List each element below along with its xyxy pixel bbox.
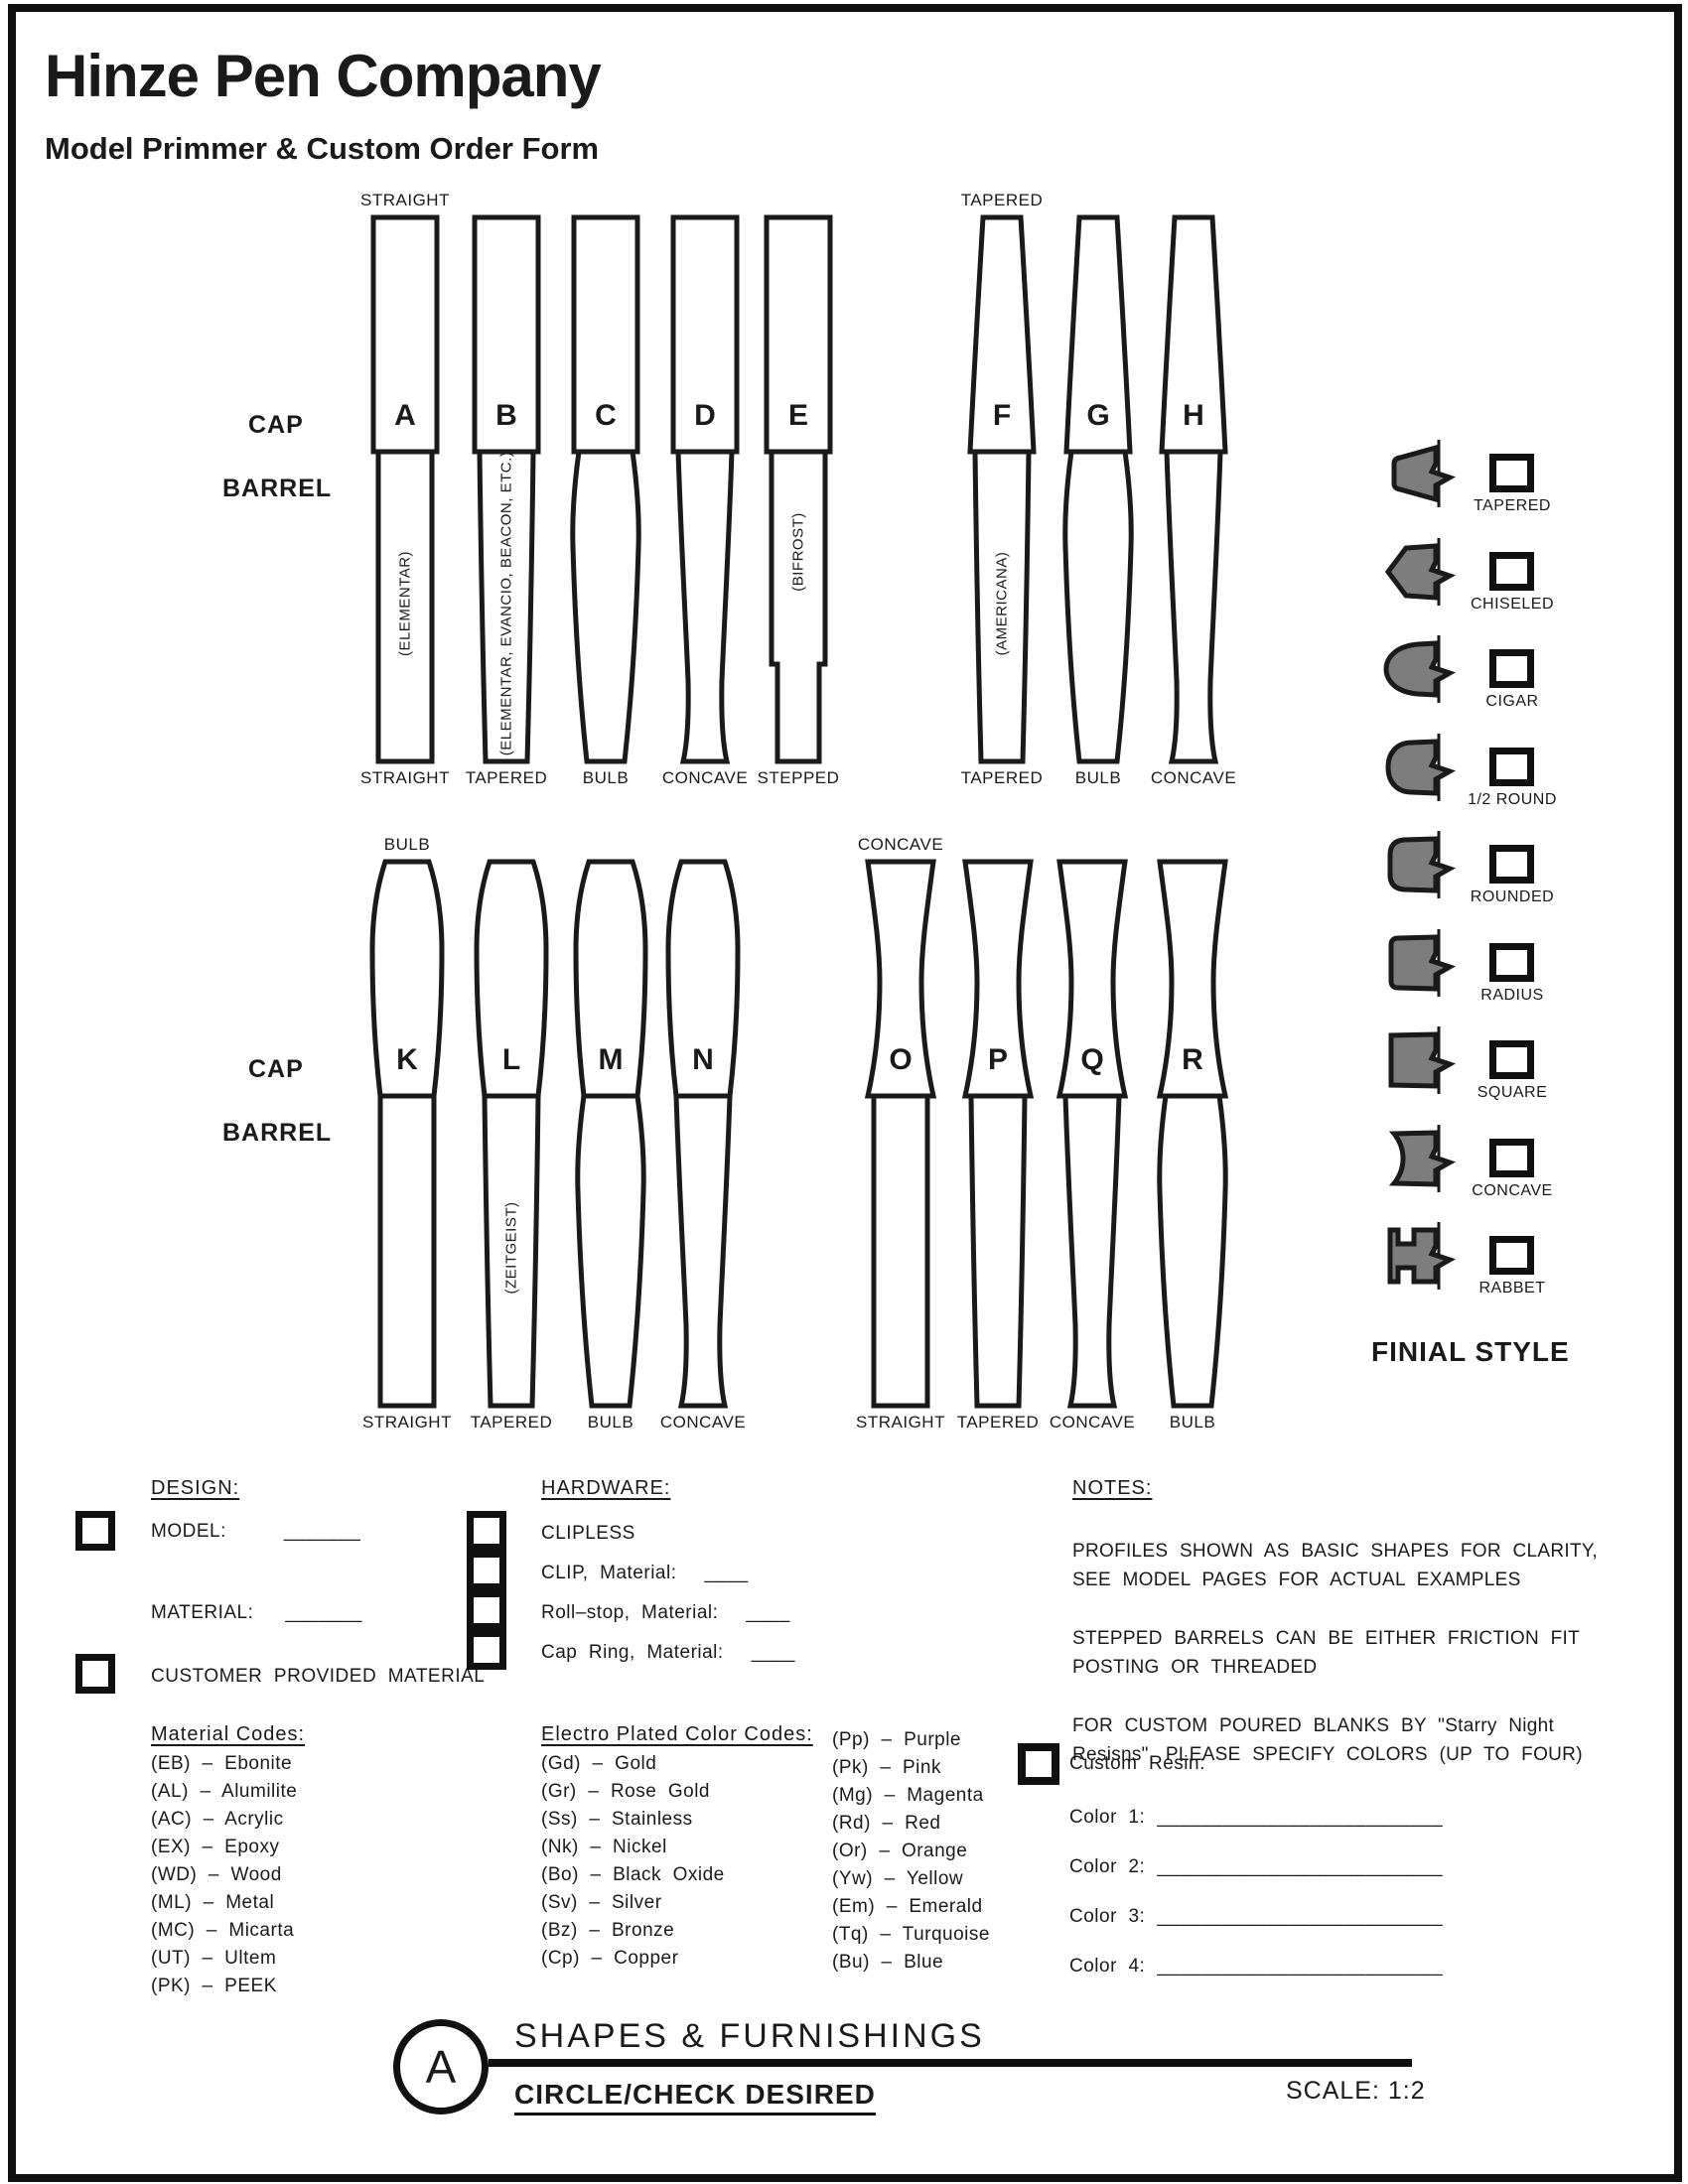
material-code-item: (EB) – Ebonite	[151, 1753, 292, 1775]
finial-shape-radius	[1384, 935, 1464, 991]
finial-label: CONCAVE	[1433, 1182, 1592, 1200]
hardware-label: CLIPLESS	[541, 1523, 635, 1544]
pen-a[interactable]: A(ELEMENTAR)STRAIGHT	[369, 214, 441, 810]
pen-g[interactable]: GBULB	[1062, 214, 1134, 810]
hardware-checkbox[interactable]	[467, 1630, 506, 1670]
finial-shape-concave	[1384, 1131, 1464, 1186]
material-row: MATERIAL:_______	[151, 1602, 362, 1624]
pen-letter: P	[962, 1043, 1034, 1077]
barrel-type-label: CONCAVE	[624, 1413, 782, 1433]
pen-barrel-shape	[971, 1096, 1025, 1406]
hardware-label: Cap Ring, Material:	[541, 1642, 724, 1663]
finial-checkbox-half-round[interactable]	[1489, 748, 1534, 786]
finial-label: RABBET	[1433, 1280, 1592, 1297]
barrel-row-label: BARREL	[222, 1119, 332, 1148]
customer-material-label: CUSTOMER PROVIDED MATERIAL	[151, 1666, 485, 1688]
resin-color-field[interactable]: __________________________	[1157, 1856, 1443, 1877]
finial-checkbox-chiseled[interactable]	[1489, 552, 1534, 591]
barrel-type-label: STEPPED	[719, 768, 878, 788]
finial-label: 1/2 ROUND	[1433, 791, 1592, 809]
barrel-row-label: BARREL	[222, 475, 332, 503]
hardware-label: CLIP, Material:	[541, 1563, 676, 1583]
material-code-item: (ML) – Metal	[151, 1892, 274, 1914]
sheet-title: SHAPES & FURNISHINGS	[514, 2017, 985, 2056]
pen-letter: M	[575, 1043, 646, 1077]
pen-f[interactable]: F(AMERICANA)TAPERED	[966, 214, 1038, 810]
material-codes-heading: Material Codes:	[151, 1723, 305, 1746]
material-code-item: (AL) – Alumilite	[151, 1781, 297, 1803]
cap-type-label: TAPERED	[916, 191, 1087, 210]
company-title: Hinze Pen Company	[45, 42, 601, 110]
plating-code-item: (Cp) – Copper	[541, 1948, 678, 1970]
order-form-page: Hinze Pen Company Model Primmer & Custom…	[0, 0, 1688, 2184]
material-code-item: (MC) – Micarta	[151, 1920, 294, 1942]
finial-label: CHISELED	[1433, 596, 1592, 614]
finial-checkbox-tapered[interactable]	[1489, 454, 1534, 492]
plating-code-item: (Pk) – Pink	[832, 1757, 941, 1779]
resin-color-row: Color 4:__________________________	[1069, 1956, 1443, 1978]
pen-model-note: (AMERICANA)	[994, 552, 1011, 656]
plating-code-item: (Sv) – Silver	[541, 1892, 662, 1914]
finial-checkbox-radius[interactable]	[1489, 943, 1534, 982]
material-field[interactable]: _______	[285, 1602, 361, 1623]
finial-label: RADIUS	[1433, 987, 1592, 1005]
plating-code-item: (Yw) – Yellow	[832, 1868, 963, 1890]
pen-letter: A	[369, 399, 441, 433]
note-stepped: STEPPED BARRELS CAN BE EITHER FRICTION F…	[1072, 1624, 1617, 1682]
pen-model-note: (ELEMENTAR)	[397, 551, 414, 656]
pen-b[interactable]: B(ELEMENTAR, EVANCIO, BEACON, ETC.)TAPER…	[471, 214, 542, 810]
pen-letter: B	[471, 399, 542, 433]
plating-code-item: (Mg) – Magenta	[832, 1785, 984, 1807]
pen-letter: O	[865, 1043, 936, 1077]
hardware-checkbox[interactable]	[467, 1511, 506, 1551]
plating-code-item: (Bz) – Bronze	[541, 1920, 674, 1942]
finial-shape-square	[1384, 1032, 1464, 1088]
sheet-scale: SCALE: 1:2	[1286, 2077, 1426, 2106]
hardware-material-field[interactable]: ____	[746, 1602, 789, 1623]
cap-type-label: STRAIGHT	[320, 191, 491, 210]
finial-shape-rounded	[1384, 837, 1464, 892]
finial-shape-half-round	[1384, 740, 1464, 795]
resin-color-row: Color 2:__________________________	[1069, 1856, 1443, 1878]
material-code-item: (EX) – Epoxy	[151, 1837, 280, 1858]
plating-code-item: (Rd) – Red	[832, 1813, 940, 1835]
material-code-item: (UT) – Ultem	[151, 1948, 276, 1970]
plating-code-item: (Tq) – Turquoise	[832, 1924, 990, 1946]
pen-q[interactable]: QCONCAVE	[1056, 859, 1128, 1454]
pen-r[interactable]: RBULB	[1157, 859, 1228, 1454]
finial-label: ROUNDED	[1433, 888, 1592, 906]
pen-letter: D	[669, 399, 741, 433]
design-heading: DESIGN:	[151, 1477, 239, 1500]
resin-color-label: Color 3:	[1069, 1906, 1145, 1927]
pen-n[interactable]: NCONCAVE	[667, 859, 739, 1454]
pen-barrel-shape	[578, 1096, 644, 1406]
pen-letter: Q	[1056, 1043, 1128, 1077]
sheet-instruction: CIRCLE/CHECK DESIRED	[514, 2079, 876, 2116]
finial-shape-tapered	[1384, 446, 1464, 501]
hardware-row: Roll–stop, Material:____	[541, 1602, 790, 1624]
resin-color-row: Color 1:__________________________	[1069, 1807, 1443, 1829]
pen-barrel-shape	[1065, 1096, 1119, 1406]
pen-letter: L	[476, 1043, 547, 1077]
material-code-item: (WD) – Wood	[151, 1864, 282, 1886]
hardware-checkbox[interactable]	[467, 1590, 506, 1630]
finial-shape-rabbet	[1384, 1228, 1464, 1284]
resin-color-label: Color 1:	[1069, 1807, 1145, 1828]
finial-checkbox-square[interactable]	[1489, 1040, 1534, 1079]
pen-barrel-shape	[772, 452, 825, 761]
plating-code-item: (Bo) – Black Oxide	[541, 1864, 725, 1886]
plating-code-item: (Ss) – Stainless	[541, 1809, 693, 1831]
resin-color-field[interactable]: __________________________	[1157, 1956, 1443, 1977]
resin-color-label: Color 4:	[1069, 1956, 1145, 1977]
custom-resin-label: Custom Resin:	[1069, 1753, 1205, 1775]
finial-checkbox-concave[interactable]	[1489, 1139, 1534, 1177]
barrel-type-label: CONCAVE	[1114, 768, 1273, 788]
material-label: MATERIAL:	[151, 1602, 253, 1623]
pen-letter: R	[1157, 1043, 1228, 1077]
hardware-material-field[interactable]: ____	[752, 1642, 795, 1663]
pen-c[interactable]: CBULB	[570, 214, 641, 810]
finial-label: SQUARE	[1433, 1084, 1592, 1102]
pen-d[interactable]: DCONCAVE	[669, 214, 741, 810]
pen-m[interactable]: MBULB	[575, 859, 646, 1454]
pen-barrel-shape	[1160, 1096, 1226, 1406]
pen-letter: H	[1158, 399, 1229, 433]
pen-p[interactable]: PTAPERED	[962, 859, 1034, 1454]
pen-letter: K	[371, 1043, 443, 1077]
model-row: MODEL:_______	[151, 1521, 360, 1543]
cap-row-label: CAP	[248, 411, 304, 440]
plating-code-item: (Em) – Emerald	[832, 1896, 983, 1918]
cap-row-label: CAP	[248, 1055, 304, 1084]
pen-model-note: (ZEITGEIST)	[503, 1202, 520, 1295]
finial-checkbox-cigar[interactable]	[1489, 649, 1534, 688]
plating-code-item: (Or) – Orange	[832, 1841, 967, 1862]
title-block-divider	[489, 2059, 1412, 2067]
hardware-material-field[interactable]: ____	[704, 1563, 748, 1583]
pen-letter: N	[667, 1043, 739, 1077]
pen-k[interactable]: KSTRAIGHT	[371, 859, 443, 1454]
material-code-item: (PK) – PEEK	[151, 1976, 277, 1997]
resin-color-row: Color 3:__________________________	[1069, 1906, 1443, 1928]
barrel-type-label: BULB	[1113, 1413, 1272, 1433]
finial-shape-cigar	[1384, 641, 1464, 697]
finial-style-heading: FINIAL STYLE	[1371, 1336, 1570, 1368]
form-title: Model Primmer & Custom Order Form	[45, 131, 599, 167]
notes-heading: NOTES:	[1072, 1477, 1152, 1500]
pen-barrel-shape	[1167, 452, 1220, 761]
plating-code-item: (Gr) – Rose Gold	[541, 1781, 710, 1803]
pen-barrel-shape	[676, 1096, 730, 1406]
custom-resin-checkbox[interactable]	[1018, 1743, 1059, 1785]
customer-material-checkbox[interactable]	[75, 1654, 115, 1694]
hardware-row: CLIPLESS	[541, 1523, 635, 1545]
cap-type-label: CONCAVE	[815, 835, 986, 855]
pen-letter: G	[1062, 399, 1134, 433]
pen-letter: E	[763, 399, 834, 433]
pen-l[interactable]: L(ZEITGEIST)TAPERED	[476, 859, 547, 1454]
detail-letter-circle: A	[393, 2019, 489, 2115]
note-profiles: PROFILES SHOWN AS BASIC SHAPES FOR CLARI…	[1072, 1537, 1617, 1594]
pen-barrel-shape	[573, 452, 639, 761]
pen-model-note: (BIFROST)	[790, 512, 807, 592]
finial-shape-chiseled	[1384, 544, 1464, 600]
pen-letter: F	[966, 399, 1038, 433]
material-code-item: (AC) – Acrylic	[151, 1809, 284, 1831]
plating-code-item: (Bu) – Blue	[832, 1952, 943, 1974]
finial-checkbox-rounded[interactable]	[1489, 845, 1534, 884]
pen-model-note: (ELEMENTAR, EVANCIO, BEACON, ETC.)	[498, 452, 515, 755]
pen-barrel-shape	[678, 452, 732, 761]
pen-e[interactable]: E(BIFROST)STEPPED	[763, 214, 834, 810]
hardware-checkbox[interactable]	[467, 1551, 506, 1590]
cap-type-label: BULB	[322, 835, 492, 855]
resin-color-label: Color 2:	[1069, 1856, 1145, 1877]
hardware-heading: HARDWARE:	[541, 1477, 670, 1500]
hardware-label: Roll–stop, Material:	[541, 1602, 718, 1623]
model-field[interactable]: _______	[284, 1521, 360, 1542]
plating-codes-heading: Electro Plated Color Codes:	[541, 1723, 813, 1746]
hardware-row: CLIP, Material:____	[541, 1563, 749, 1584]
resin-color-field[interactable]: __________________________	[1157, 1807, 1443, 1828]
pen-barrel-shape	[1065, 452, 1132, 761]
pen-barrel-shape	[380, 1096, 434, 1406]
model-label: MODEL:	[151, 1521, 226, 1542]
plating-code-item: (Nk) – Nickel	[541, 1837, 667, 1858]
pen-barrel-shape	[874, 1096, 927, 1406]
hardware-row: Cap Ring, Material:____	[541, 1642, 795, 1664]
finial-label: CIGAR	[1433, 693, 1592, 711]
pen-letter: C	[570, 399, 641, 433]
finial-label: TAPERED	[1433, 497, 1592, 515]
plating-code-item: (Gd) – Gold	[541, 1753, 656, 1775]
pen-h[interactable]: HCONCAVE	[1158, 214, 1229, 810]
pen-o[interactable]: OSTRAIGHT	[865, 859, 936, 1454]
plating-code-item: (Pp) – Purple	[832, 1729, 961, 1751]
finial-checkbox-rabbet[interactable]	[1489, 1236, 1534, 1275]
resin-color-field[interactable]: __________________________	[1157, 1906, 1443, 1927]
model-checkbox[interactable]	[75, 1511, 115, 1551]
